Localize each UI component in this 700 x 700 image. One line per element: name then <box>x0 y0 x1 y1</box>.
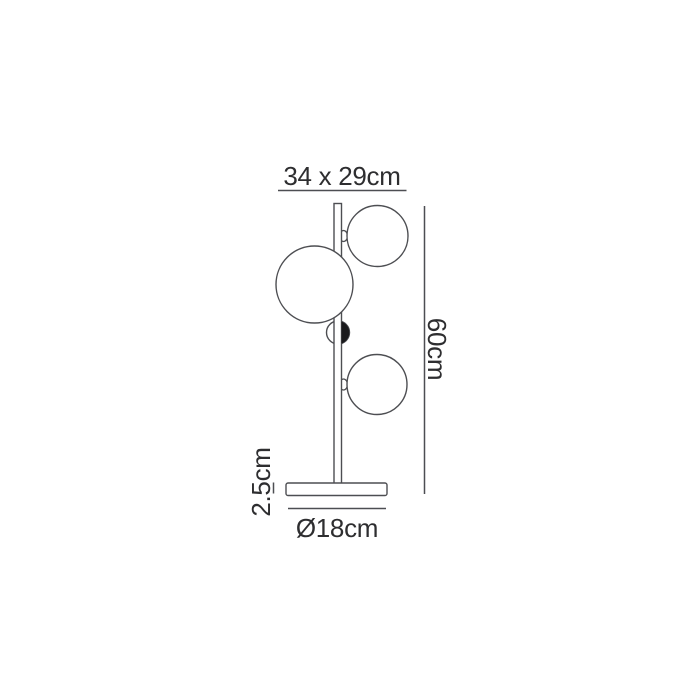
lamp-pole <box>334 204 342 485</box>
product-dimension-diagram: 34 x 29cm 60cm 2.5cm Ø18cm <box>0 0 700 700</box>
dimension-label-base-diameter: Ø18cm <box>296 513 378 543</box>
dimension-label-width: 34 x 29cm <box>283 161 400 191</box>
lamp-base <box>286 483 387 496</box>
lamp-diagram-svg: 34 x 29cm 60cm 2.5cm Ø18cm <box>0 0 700 700</box>
socket-shadow <box>342 322 350 344</box>
globe-middle <box>276 246 353 323</box>
dimension-label-base-thickness: 2.5cm <box>246 447 276 516</box>
dimension-label-height: 60cm <box>422 318 452 380</box>
globe-bottom <box>347 355 407 415</box>
globe-top <box>347 206 408 267</box>
